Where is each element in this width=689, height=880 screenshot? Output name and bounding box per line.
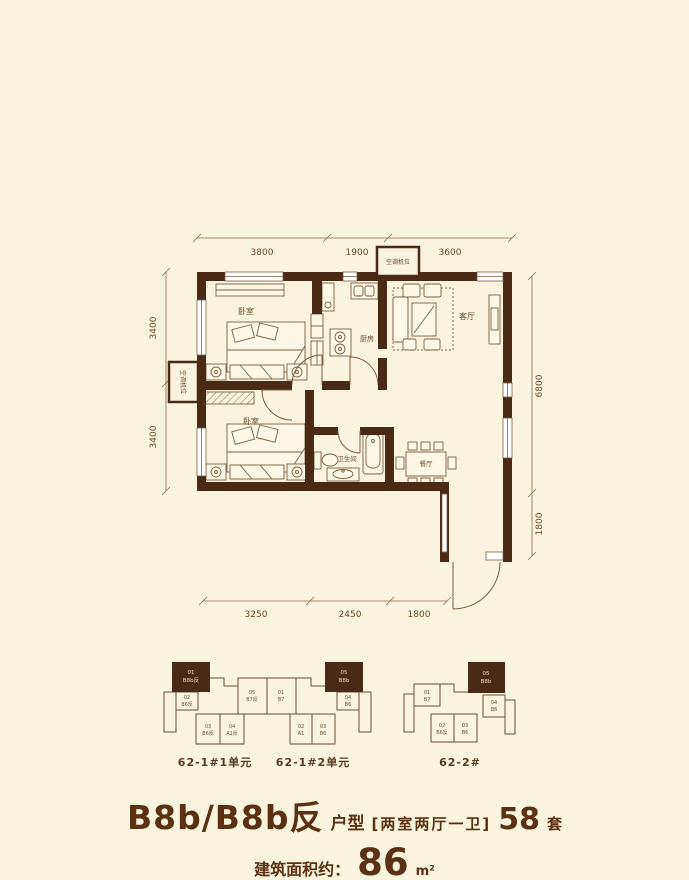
unit-key-caption: 62-1#1单元 — [178, 755, 252, 769]
unit-type: B6反 — [436, 729, 448, 736]
unit-id: 04 — [229, 724, 235, 730]
unit-type: A1反 — [226, 730, 238, 737]
room-label-kitchen: 厨房 — [360, 334, 374, 343]
floorplan-drawing: 3800 1900 3600 3400 3400 6800 1800 3250 … — [0, 0, 689, 880]
dim-left-2: 3400 — [149, 425, 159, 448]
unit-model-name: B8b/B8b反 — [127, 791, 324, 839]
area-label: 建筑面积约： — [254, 856, 350, 880]
dim-right-1: 6800 — [535, 374, 545, 397]
dim-top-3: 3600 — [439, 248, 462, 258]
unit-type: A1 — [298, 731, 305, 737]
dim-top-2: 1900 — [346, 248, 369, 258]
dimension-labels: 3800 1900 3600 3400 3400 6800 1800 3250 … — [149, 248, 545, 620]
unit-type: B6反 — [181, 701, 193, 708]
room-label-bathroom: 卫生间 — [337, 454, 357, 463]
dim-right-2: 1800 — [535, 512, 545, 535]
area-line: 建筑面积约： 86 m² — [0, 841, 689, 880]
unit-type: B7反 — [246, 696, 258, 703]
unit-id: 01 — [278, 690, 284, 696]
unit-id: 04 — [491, 700, 497, 706]
unit-id: 01 — [424, 690, 430, 696]
unit-id: 05 — [483, 671, 490, 677]
area-unit: m² — [416, 864, 435, 879]
title-line: B8b/B8b反 户型 [两室两厅一卫] 58 套 — [0, 791, 689, 839]
unit-type: B8b反 — [183, 676, 200, 684]
highlight-unit-block — [468, 662, 505, 693]
bedroom1-furniture — [206, 284, 307, 380]
dim-left-1: 3400 — [149, 316, 159, 339]
bedroom2-furniture — [201, 392, 307, 480]
room-label-living: 客厅 — [459, 311, 475, 321]
unit-id: 03 — [205, 724, 211, 730]
unit-type: B7 — [278, 697, 285, 703]
unit-id: 04 — [345, 695, 351, 701]
unit-key-62-1-2: 01 B7 02 A1 03 B6 04 B6 05 B8b 62-1#2单元 — [267, 662, 371, 769]
dim-top-1: 3800 — [251, 248, 274, 258]
unit-model-suffix: 户型 — [331, 809, 365, 834]
unit-key-caption: 62-2# — [439, 756, 481, 769]
room-label-dining: 餐厅 — [420, 459, 434, 468]
dim-bottom-3: 1800 — [408, 610, 431, 620]
title-block: B8b/B8b反 户型 [两室两厅一卫] 58 套 建筑面积约： 86 m² — [0, 791, 689, 880]
unit-id: 03 — [320, 724, 326, 730]
unit-type: B7 — [424, 697, 431, 703]
room-label-bedroom2: 卧室 — [243, 416, 259, 426]
ac-top-label: 空调机位 — [386, 258, 410, 266]
unit-id: 03 — [462, 723, 468, 729]
unit-type: B6反 — [202, 730, 214, 737]
layout-description: [两室两厅一卫] — [372, 813, 492, 834]
floorplan-page: 3800 1900 3600 3400 3400 6800 1800 3250 … — [0, 0, 689, 880]
dim-bottom-2: 2450 — [339, 610, 362, 620]
unit-type: B6 — [345, 702, 352, 708]
unit-id: 02 — [298, 724, 304, 730]
highlight-unit-block — [325, 662, 363, 692]
unit-type: B8b — [339, 678, 350, 684]
unit-id: 02 — [439, 723, 445, 729]
unit-type: B8b — [481, 679, 492, 685]
ac-left-label: 空调机位 — [179, 370, 187, 394]
unit-id: 05 — [341, 670, 348, 676]
unit-key-caption: 62-1#2单元 — [276, 755, 350, 769]
unit-key-62-2: 01 B7 02 B6反 03 B6 04 B6 05 B8b 62-2# — [404, 662, 515, 769]
room-label-bedroom1: 卧室 — [238, 306, 254, 316]
unit-id: 01 — [188, 670, 195, 676]
area-value: 86 — [357, 841, 409, 880]
unit-type: B6 — [462, 730, 469, 736]
unit-count: 58 — [498, 802, 540, 837]
unit-count-unit: 套 — [547, 813, 562, 834]
unit-key-62-1-1: 01 B8b反 02 B6反 03 B6反 04 A1反 05 B7反 62-1… — [164, 662, 267, 769]
highlight-unit-block — [172, 662, 210, 692]
dim-bottom-1: 3250 — [245, 610, 268, 620]
unit-id: 05 — [249, 690, 255, 696]
unit-type: B6 — [320, 731, 327, 737]
unit-id: 02 — [184, 695, 190, 701]
unit-type: B6 — [491, 707, 498, 713]
living-furniture — [393, 284, 500, 350]
